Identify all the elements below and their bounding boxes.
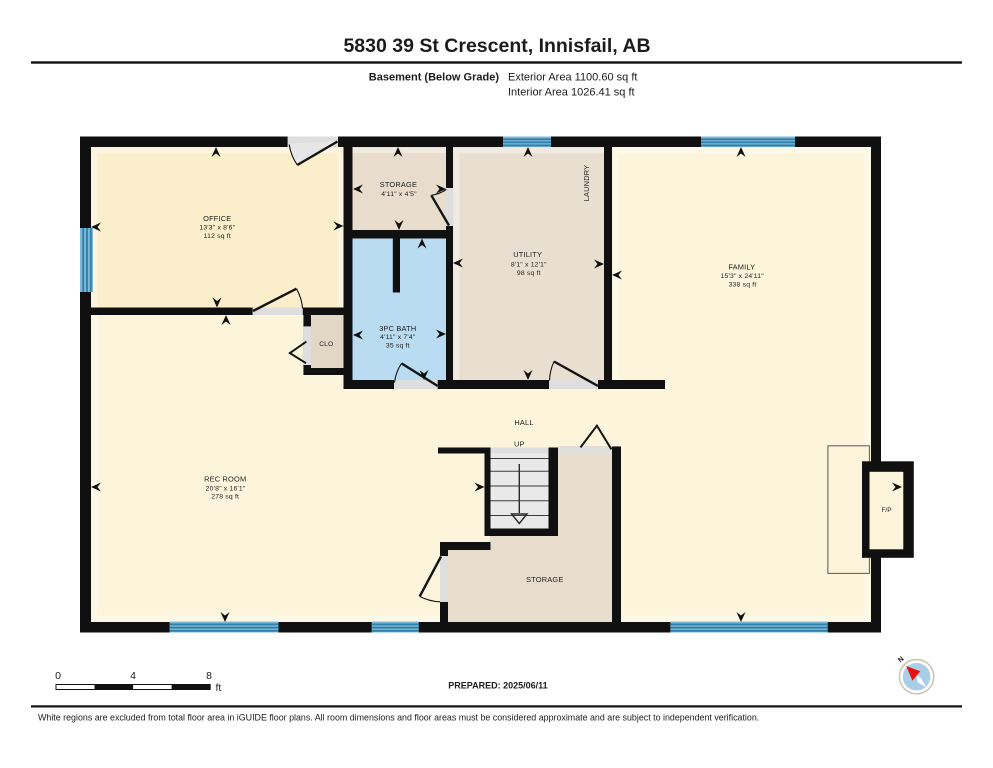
svg-text:F/P: F/P	[881, 507, 891, 514]
svg-text:278 sq ft: 278 sq ft	[211, 494, 239, 501]
svg-text:338 sq ft: 338 sq ft	[729, 281, 757, 288]
svg-text:ft: ft	[216, 682, 222, 694]
svg-text:HALL: HALL	[514, 418, 533, 427]
svg-text:3PC BATH: 3PC BATH	[379, 324, 416, 333]
svg-text:Basement (Below Grade): Basement (Below Grade)	[369, 72, 500, 84]
svg-text:20'8" x 16'1": 20'8" x 16'1"	[206, 486, 246, 493]
svg-text:4: 4	[130, 670, 136, 682]
svg-text:4'11" x 4'5": 4'11" x 4'5"	[381, 191, 417, 198]
svg-text:Interior Area 1026.41 sq ft: Interior Area 1026.41 sq ft	[508, 87, 635, 99]
svg-text:98 sq ft: 98 sq ft	[517, 270, 541, 277]
svg-text:0: 0	[55, 670, 61, 682]
svg-text:112 sq ft: 112 sq ft	[204, 233, 231, 240]
svg-text:13'3" x 8'6": 13'3" x 8'6"	[199, 225, 235, 232]
svg-text:STORAGE: STORAGE	[526, 575, 563, 584]
svg-text:35 sq ft: 35 sq ft	[386, 343, 410, 350]
svg-text:5830 39 St Crescent, Innisfail: 5830 39 St Crescent, Innisfail, AB	[343, 35, 650, 57]
svg-text:CLO: CLO	[319, 341, 333, 348]
svg-text:8: 8	[206, 670, 212, 682]
svg-text:8'1" x 12'1": 8'1" x 12'1"	[511, 262, 547, 269]
svg-text:4'11" x 7'4": 4'11" x 7'4"	[380, 334, 416, 341]
svg-text:UP: UP	[514, 440, 525, 449]
svg-text:White regions are excluded fro: White regions are excluded from total fl…	[38, 713, 759, 723]
svg-text:FAMILY: FAMILY	[728, 263, 755, 272]
svg-text:LAUNDRY: LAUNDRY	[582, 165, 591, 202]
svg-text:15'3" x 24'11": 15'3" x 24'11"	[721, 273, 765, 280]
svg-text:STORAGE: STORAGE	[380, 180, 417, 189]
svg-text:REC ROOM: REC ROOM	[204, 474, 246, 483]
svg-text:UTILITY: UTILITY	[513, 250, 542, 259]
svg-text:PREPARED: 2025/06/11: PREPARED: 2025/06/11	[448, 681, 547, 691]
svg-text:Exterior Area 1100.60 sq ft: Exterior Area 1100.60 sq ft	[508, 72, 637, 84]
svg-text:OFFICE: OFFICE	[203, 214, 231, 223]
